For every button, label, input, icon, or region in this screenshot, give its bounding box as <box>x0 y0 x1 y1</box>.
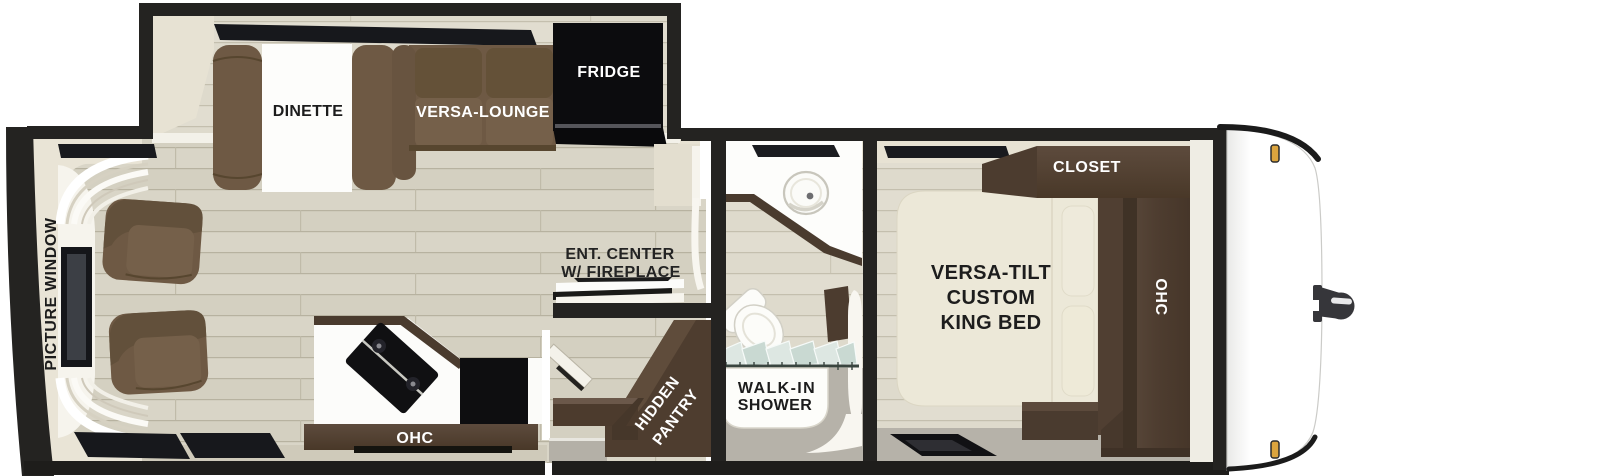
svg-text:PICTURE WINDOW: PICTURE WINDOW <box>43 217 60 371</box>
svg-text:VERSA-LOUNGE: VERSA-LOUNGE <box>416 104 550 121</box>
svg-text:VERSA-TILT: VERSA-TILT <box>931 262 1051 284</box>
svg-text:SHOWER: SHOWER <box>738 397 812 414</box>
svg-text:OHC: OHC <box>396 430 433 447</box>
svg-text:CUSTOM: CUSTOM <box>947 287 1036 309</box>
svg-text:CLOSET: CLOSET <box>1053 159 1121 176</box>
svg-text:WALK-IN: WALK-IN <box>738 380 816 397</box>
svg-text:KING BED: KING BED <box>941 312 1042 334</box>
svg-text:DINETTE: DINETTE <box>273 103 344 120</box>
svg-text:ENT. CENTER: ENT. CENTER <box>565 246 674 263</box>
svg-text:OHC: OHC <box>1152 278 1169 315</box>
svg-text:FRIDGE: FRIDGE <box>577 64 640 81</box>
